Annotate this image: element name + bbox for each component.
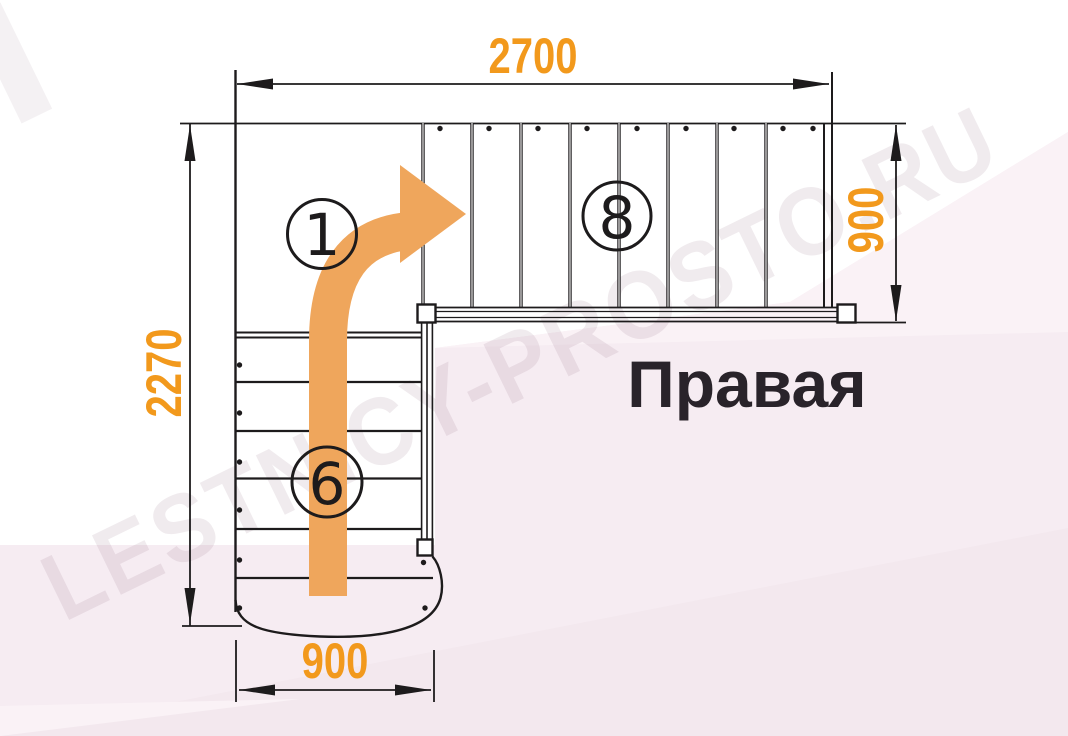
step-label-lower-flight: 6 <box>309 455 346 513</box>
step-label-start: 1 <box>304 206 341 264</box>
orientation-title: Правая <box>627 351 866 417</box>
lower-flight-stringer <box>422 323 433 539</box>
dimension-label-left-height: 2270 <box>139 329 189 418</box>
newel-posts <box>418 305 856 556</box>
dimension-label-top-width: 2700 <box>489 31 578 81</box>
direction-arrow-icon <box>328 165 466 596</box>
step-label-upper-flight: 8 <box>599 189 636 247</box>
dimension-label-bottom-flight-width: 900 <box>302 636 369 686</box>
upper-flight-treads <box>423 123 766 307</box>
staircase-plan-diagram: LESTNICY-PROSTO.RU <box>0 0 1068 736</box>
handrail-beam <box>432 308 840 322</box>
dimension-label-right-flight-width: 900 <box>841 187 891 254</box>
